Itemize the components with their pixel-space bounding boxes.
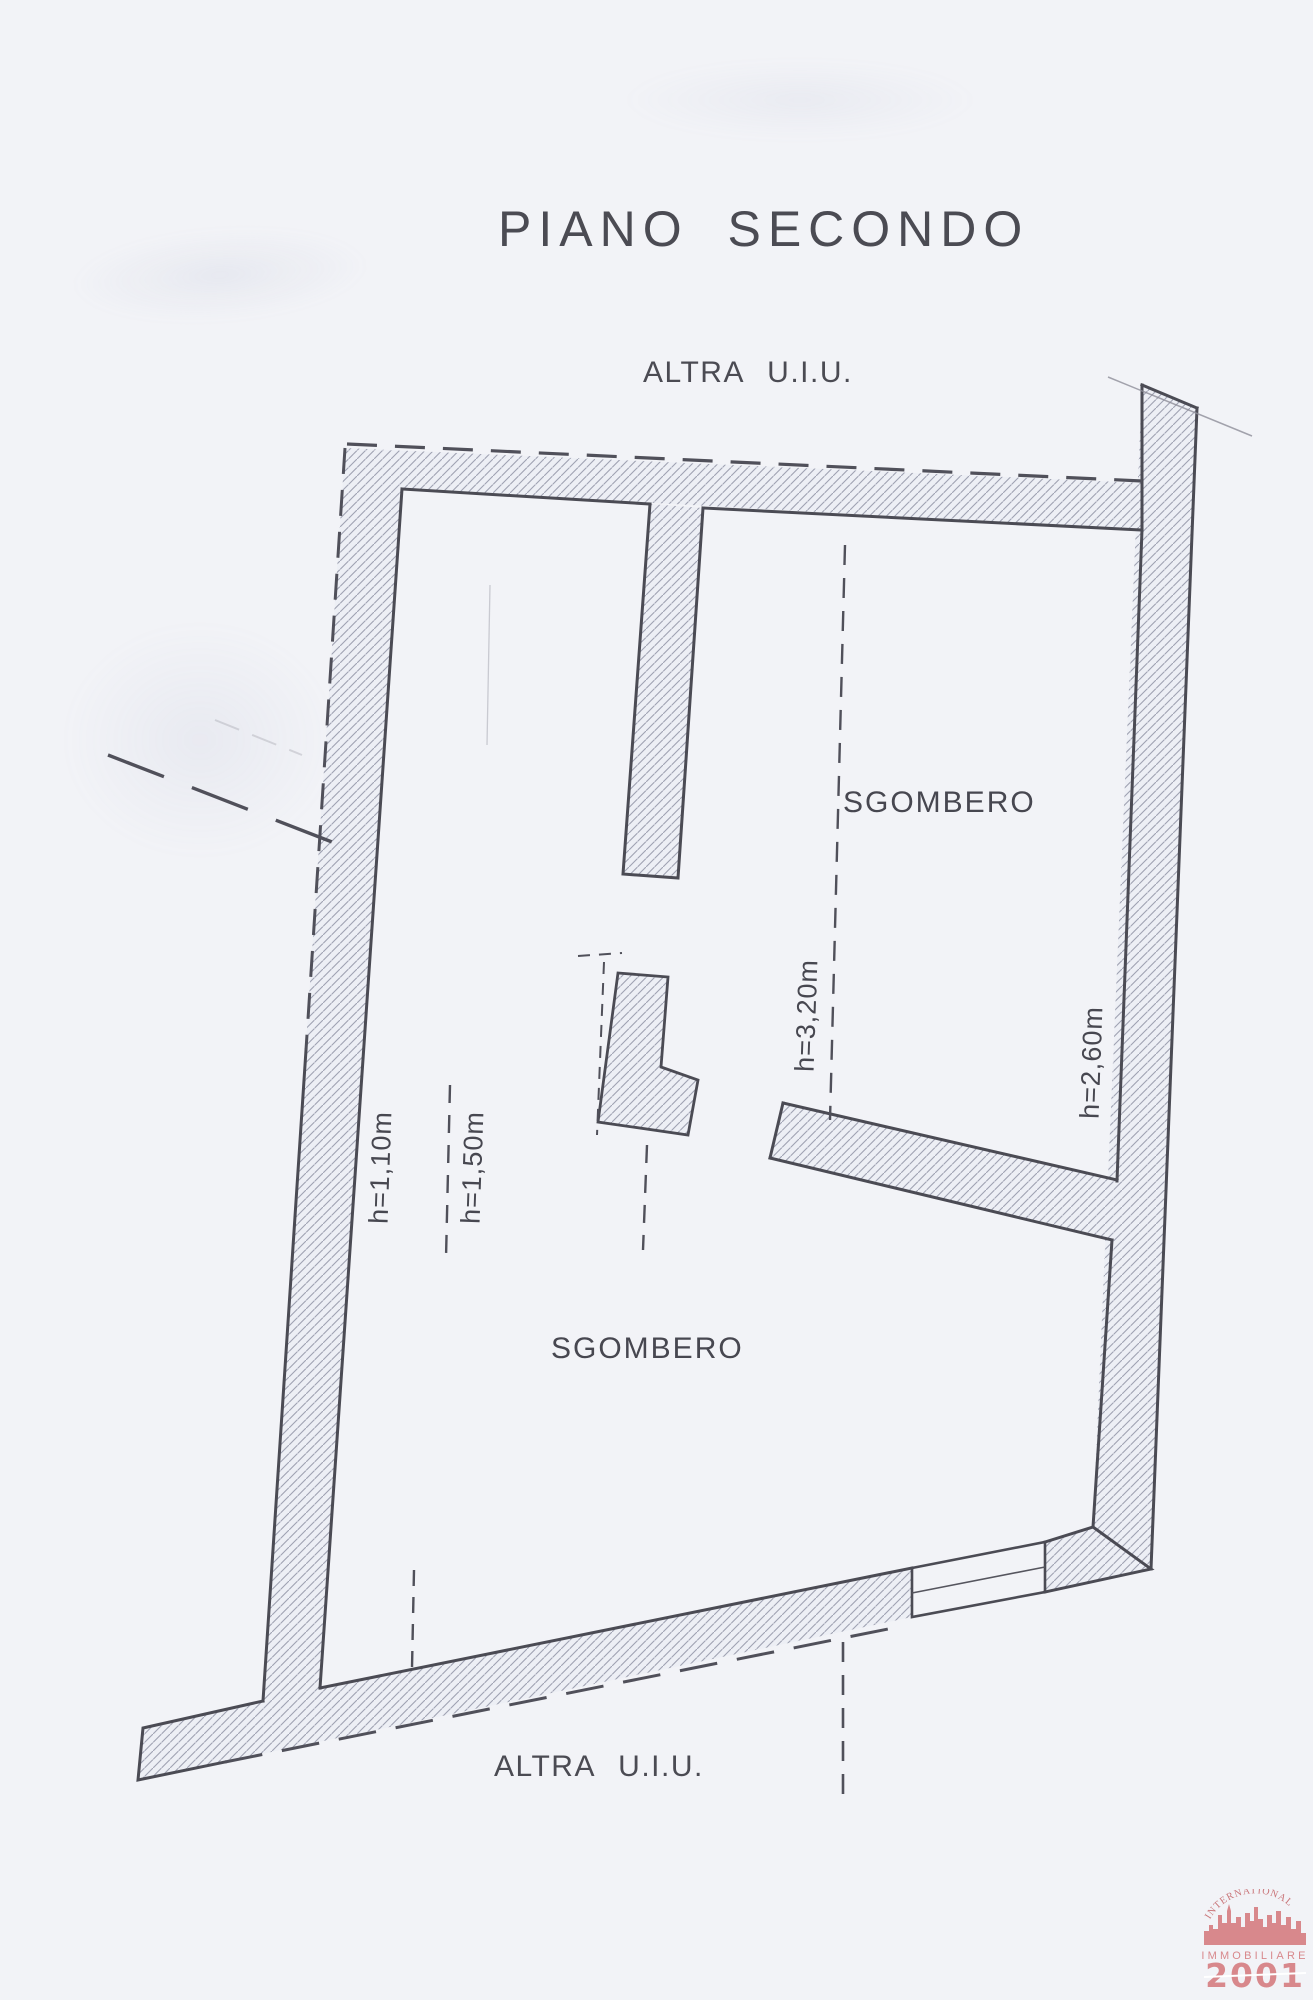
dashed-zone-line xyxy=(830,545,845,1120)
floorplan-drawing xyxy=(0,0,1313,2000)
immobiliare-2001-logo: INTERNATIONAL IMMOBILIARE 2001 xyxy=(1198,1889,1312,1995)
page-title: PIANO SECONDO xyxy=(498,200,1029,258)
height-label-3-20: h=3,20m xyxy=(789,930,826,1101)
height-label-1-10: h=1,10m xyxy=(363,1082,400,1253)
dashed-zone-line xyxy=(412,1570,414,1668)
wall-top xyxy=(345,448,1142,530)
height-label-1-50: h=1,50m xyxy=(455,1082,492,1253)
wall-pillar-l-shape xyxy=(598,973,698,1135)
room-label-lower: SGOMBERO xyxy=(551,1332,744,1366)
wall-right xyxy=(1093,385,1197,1569)
scanned-floorplan-page: PIANO SECONDO ALTRA U.I.U. SGOMBERO SGOM… xyxy=(0,0,1313,2000)
dashed-zone-line xyxy=(578,953,622,956)
dashed-zone-line xyxy=(446,1085,450,1258)
boundary-label-top: ALTRA U.I.U. xyxy=(643,356,853,390)
dashed-neighbor-line xyxy=(108,755,332,842)
boundary-label-bottom: ALTRA U.I.U. xyxy=(494,1750,704,1784)
window-opening xyxy=(912,1542,1045,1617)
wall-bottom xyxy=(138,1568,912,1780)
dashed-zone-line xyxy=(643,1145,647,1250)
room-label-upper: SGOMBERO xyxy=(843,786,1036,820)
height-label-2-60: h=2,60m xyxy=(1074,977,1111,1148)
